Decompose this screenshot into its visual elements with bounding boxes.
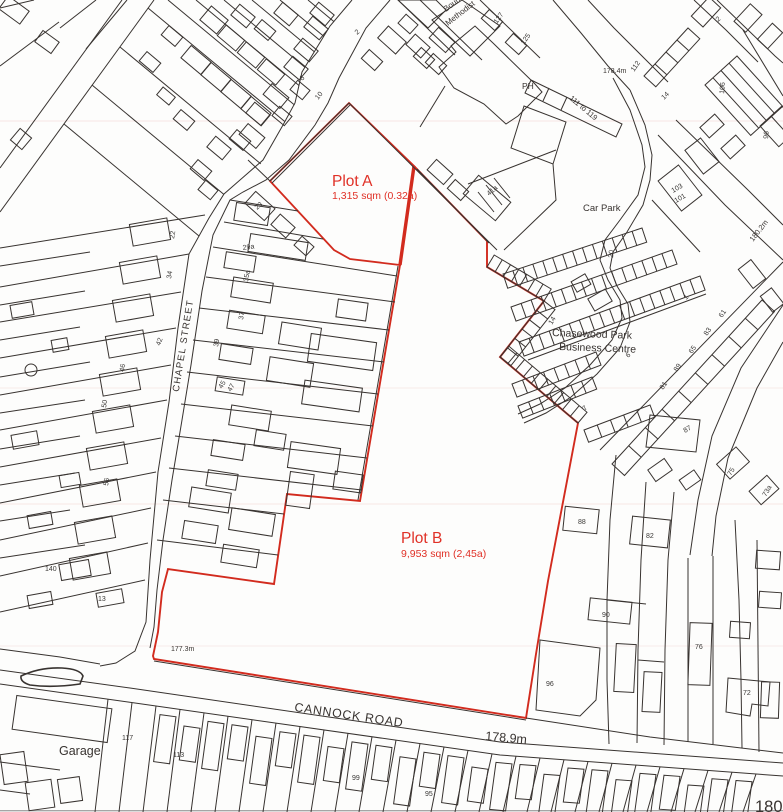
svg-text:140: 140 <box>45 566 57 573</box>
svg-text:2: 2 <box>354 29 362 37</box>
svg-text:65: 65 <box>688 345 698 355</box>
svg-text:111 to 119: 111 to 119 <box>568 94 600 123</box>
svg-text:82: 82 <box>646 533 654 540</box>
svg-text:81: 81 <box>659 381 669 391</box>
svg-text:CANNOCK ROAD: CANNOCK ROAD <box>294 700 405 730</box>
svg-text:14: 14 <box>660 91 671 102</box>
svg-text:180: 180 <box>755 798 783 812</box>
svg-text:96: 96 <box>546 681 554 688</box>
svg-text:178.4m: 178.4m <box>603 68 627 75</box>
svg-text:178.9m: 178.9m <box>485 729 528 747</box>
svg-text:95: 95 <box>425 791 433 798</box>
svg-text:112: 112 <box>630 60 642 73</box>
svg-text:9,953 sqm (2,45a): 9,953 sqm (2,45a) <box>401 548 486 560</box>
svg-text:177.3m: 177.3m <box>171 646 195 653</box>
svg-text:47: 47 <box>227 383 237 393</box>
svg-text:Garage: Garage <box>59 744 101 758</box>
svg-text:87: 87 <box>683 425 693 435</box>
svg-text:72: 72 <box>743 690 751 697</box>
svg-text:CHAPEL STREET: CHAPEL STREET <box>171 299 196 393</box>
svg-text:42: 42 <box>155 337 164 347</box>
svg-text:88: 88 <box>578 519 586 526</box>
svg-text:50: 50 <box>101 399 109 408</box>
svg-text:90: 90 <box>602 612 610 619</box>
svg-text:75: 75 <box>727 467 737 477</box>
svg-text:Plot A: Plot A <box>332 173 373 190</box>
svg-text:1,315 sqm (0.32a): 1,315 sqm (0.32a) <box>332 190 417 202</box>
svg-text:Car Park: Car Park <box>583 203 621 214</box>
svg-text:Plot B: Plot B <box>401 530 442 547</box>
svg-text:34: 34 <box>166 270 174 279</box>
svg-text:2: 2 <box>715 16 723 24</box>
svg-text:76: 76 <box>695 644 703 651</box>
svg-text:13: 13 <box>98 596 106 603</box>
svg-text:96: 96 <box>763 131 771 139</box>
svg-text:180.2m: 180.2m <box>747 218 770 243</box>
svg-text:73a: 73a <box>762 484 774 498</box>
svg-text:10: 10 <box>314 91 324 102</box>
svg-text:61: 61 <box>718 309 728 319</box>
svg-text:89: 89 <box>673 363 683 373</box>
svg-text:99: 99 <box>352 775 360 782</box>
